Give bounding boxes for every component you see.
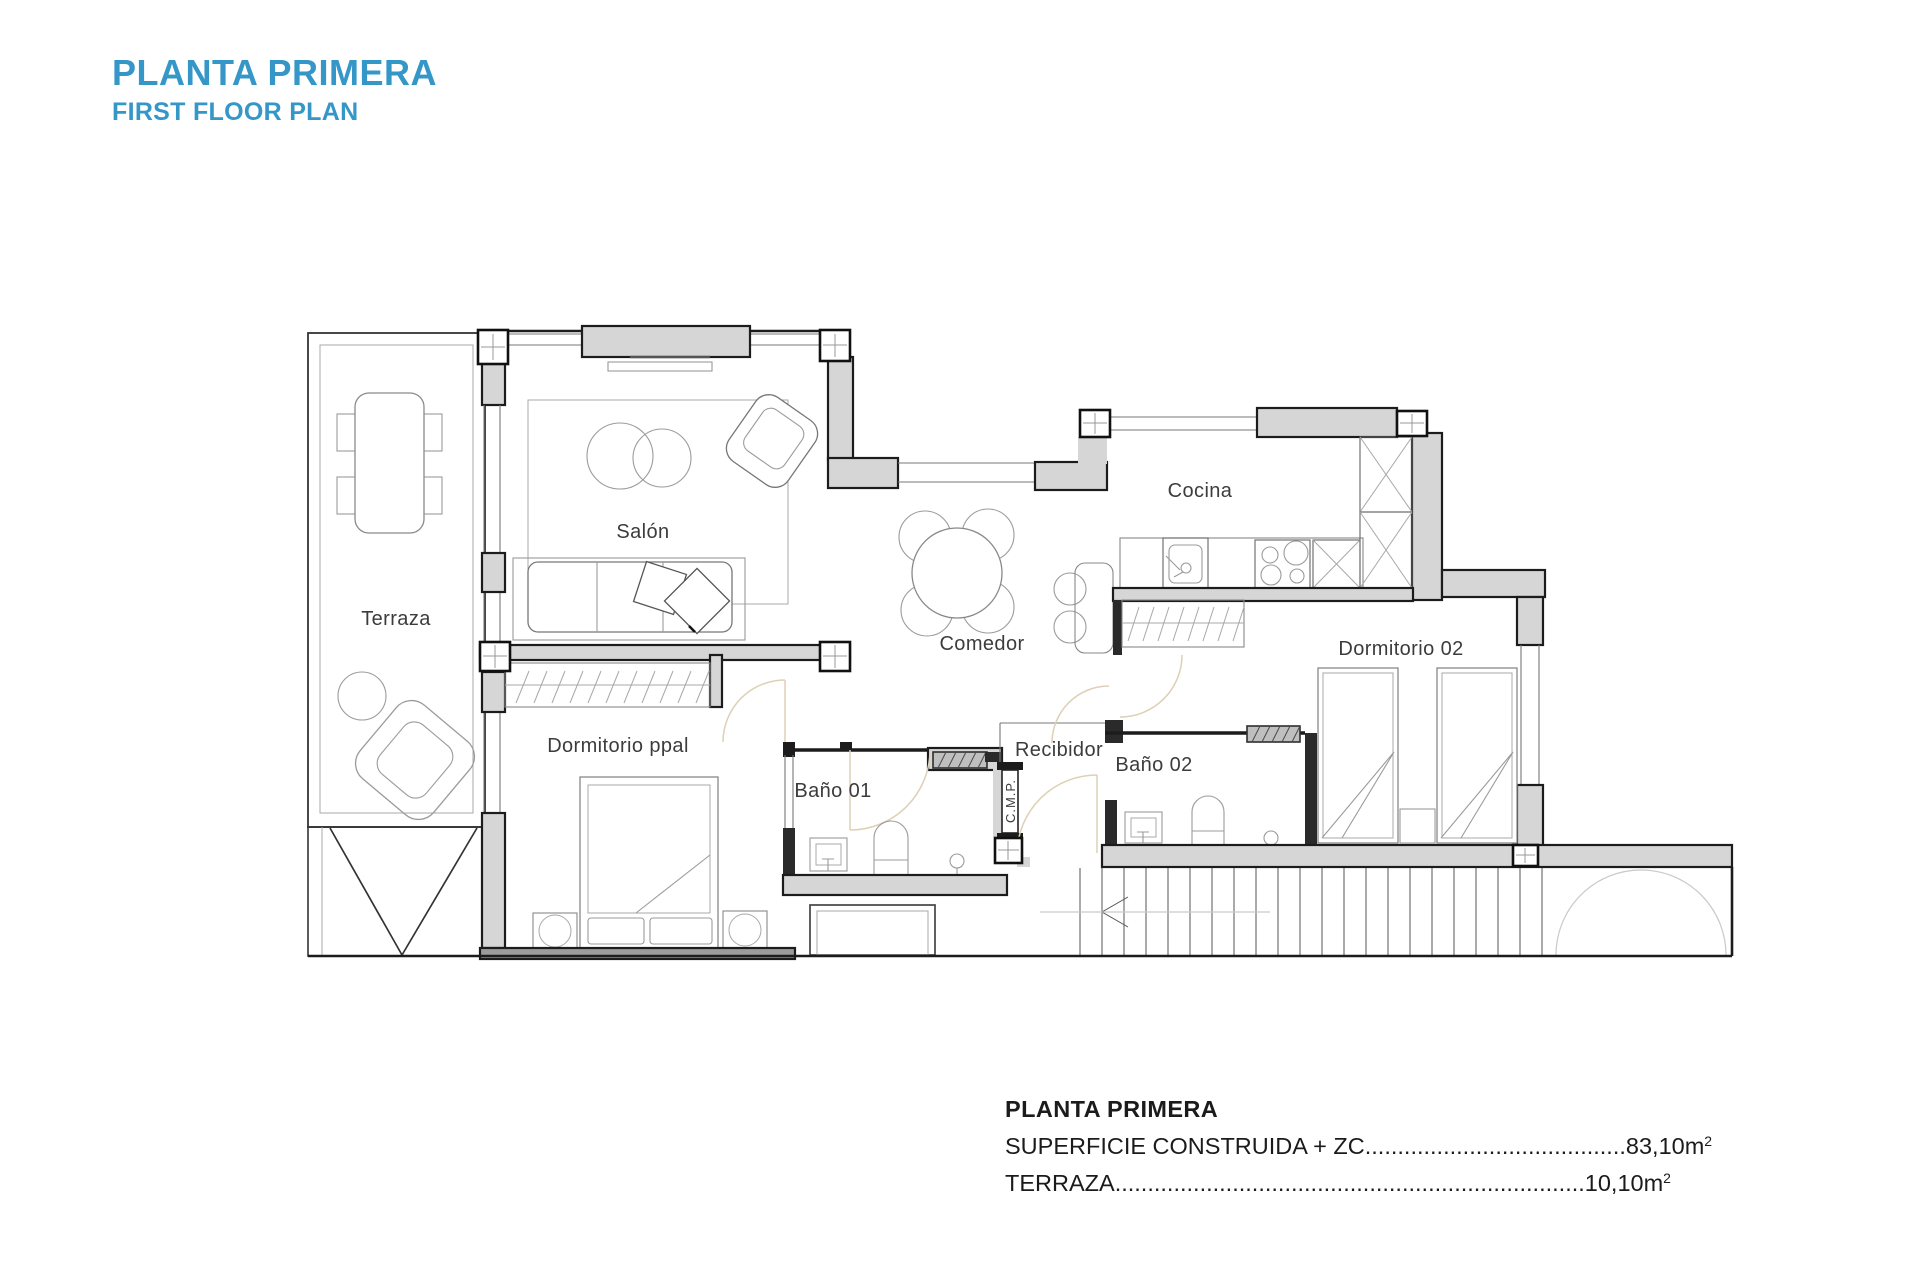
floor-plan-drawing: Terraza <box>0 0 1920 1280</box>
bano02-toilet <box>1192 796 1224 845</box>
dormitorio02-label: Dormitorio 02 <box>1338 638 1463 660</box>
cmp-label: C.M.P. <box>1003 779 1018 823</box>
ppal-wardrobe <box>505 663 710 707</box>
entry-door-arc <box>1017 775 1097 853</box>
column <box>820 330 850 361</box>
lower-terrace-void <box>308 827 485 956</box>
bano02-label: Baño 02 <box>1115 754 1192 776</box>
ppal-bed <box>580 777 718 949</box>
column <box>1513 845 1538 866</box>
salon-armchair <box>720 388 824 493</box>
stair-curve <box>1556 870 1726 955</box>
column <box>480 642 510 671</box>
kitchen-counter <box>1120 538 1363 588</box>
area-summary: PLANTA PRIMERA SUPERFICIE CONSTRUIDA + Z… <box>1005 1093 1712 1199</box>
dorm02-nightstand <box>1400 809 1435 843</box>
column <box>1080 410 1110 437</box>
floor-plan-page: PLANTA PRIMERA FIRST FLOOR PLAN Terraza <box>0 0 1920 1280</box>
summary-line-built: SUPERFICIE CONSTRUIDA + ZC..............… <box>1005 1125 1712 1162</box>
salon-window-lintel <box>582 326 750 357</box>
terrace-side-table <box>338 672 386 720</box>
terrace-table <box>355 393 424 533</box>
comedor-room: Comedor <box>899 509 1025 655</box>
dormitorio-ppal-room: Dormitorio ppal <box>480 645 850 959</box>
terraza-label: Terraza <box>361 608 431 630</box>
summary-title: PLANTA PRIMERA <box>1005 1093 1712 1125</box>
dormitorio-ppal-label: Dormitorio ppal <box>547 735 689 757</box>
recibidor-label: Recibidor <box>1015 739 1103 761</box>
summary-line-terrace: TERRAZA.................................… <box>1005 1162 1712 1199</box>
salon-sofa <box>513 558 745 640</box>
kitchen-bar <box>1054 563 1113 653</box>
bano-02-room: Baño 02 <box>1052 686 1317 853</box>
tv-console <box>608 362 712 371</box>
dorm02-door-arc <box>1120 655 1182 717</box>
ppal-door-arc <box>723 680 785 742</box>
coffee-table-2 <box>633 429 691 487</box>
dormitorio-02-room: Dormitorio 02 <box>1120 600 1517 843</box>
dorm02-bed-1 <box>1318 668 1398 843</box>
dorm02-wardrobe <box>1122 600 1244 647</box>
kitchen-sink <box>1163 538 1208 588</box>
bano-01-room: Baño 01 <box>783 742 1007 955</box>
terraza-room: Terraza <box>308 333 485 828</box>
dining-table <box>912 528 1002 618</box>
cocina-label: Cocina <box>1168 480 1233 502</box>
bano02-vent-block <box>1247 726 1300 742</box>
bano01-lower-unit <box>810 905 935 955</box>
column <box>478 330 508 364</box>
salon-label: Salón <box>616 521 669 543</box>
coffee-table <box>587 423 653 489</box>
dorm02-bed-2 <box>1437 668 1517 843</box>
column <box>995 838 1022 863</box>
kitchen-stove <box>1255 540 1310 588</box>
cmp-closet: C.M.P. <box>993 762 1023 840</box>
column <box>1397 411 1427 436</box>
comedor-label: Comedor <box>939 633 1024 655</box>
bano01-label: Baño 01 <box>794 780 871 802</box>
terrace-lounge-chair <box>347 692 482 827</box>
bano02-door-arc <box>1052 686 1109 743</box>
bano01-vent-block <box>933 752 987 768</box>
bano01-sink <box>810 838 847 871</box>
column <box>820 642 850 671</box>
bano02-sink <box>1125 812 1162 843</box>
bano01-toilet <box>874 821 908 876</box>
